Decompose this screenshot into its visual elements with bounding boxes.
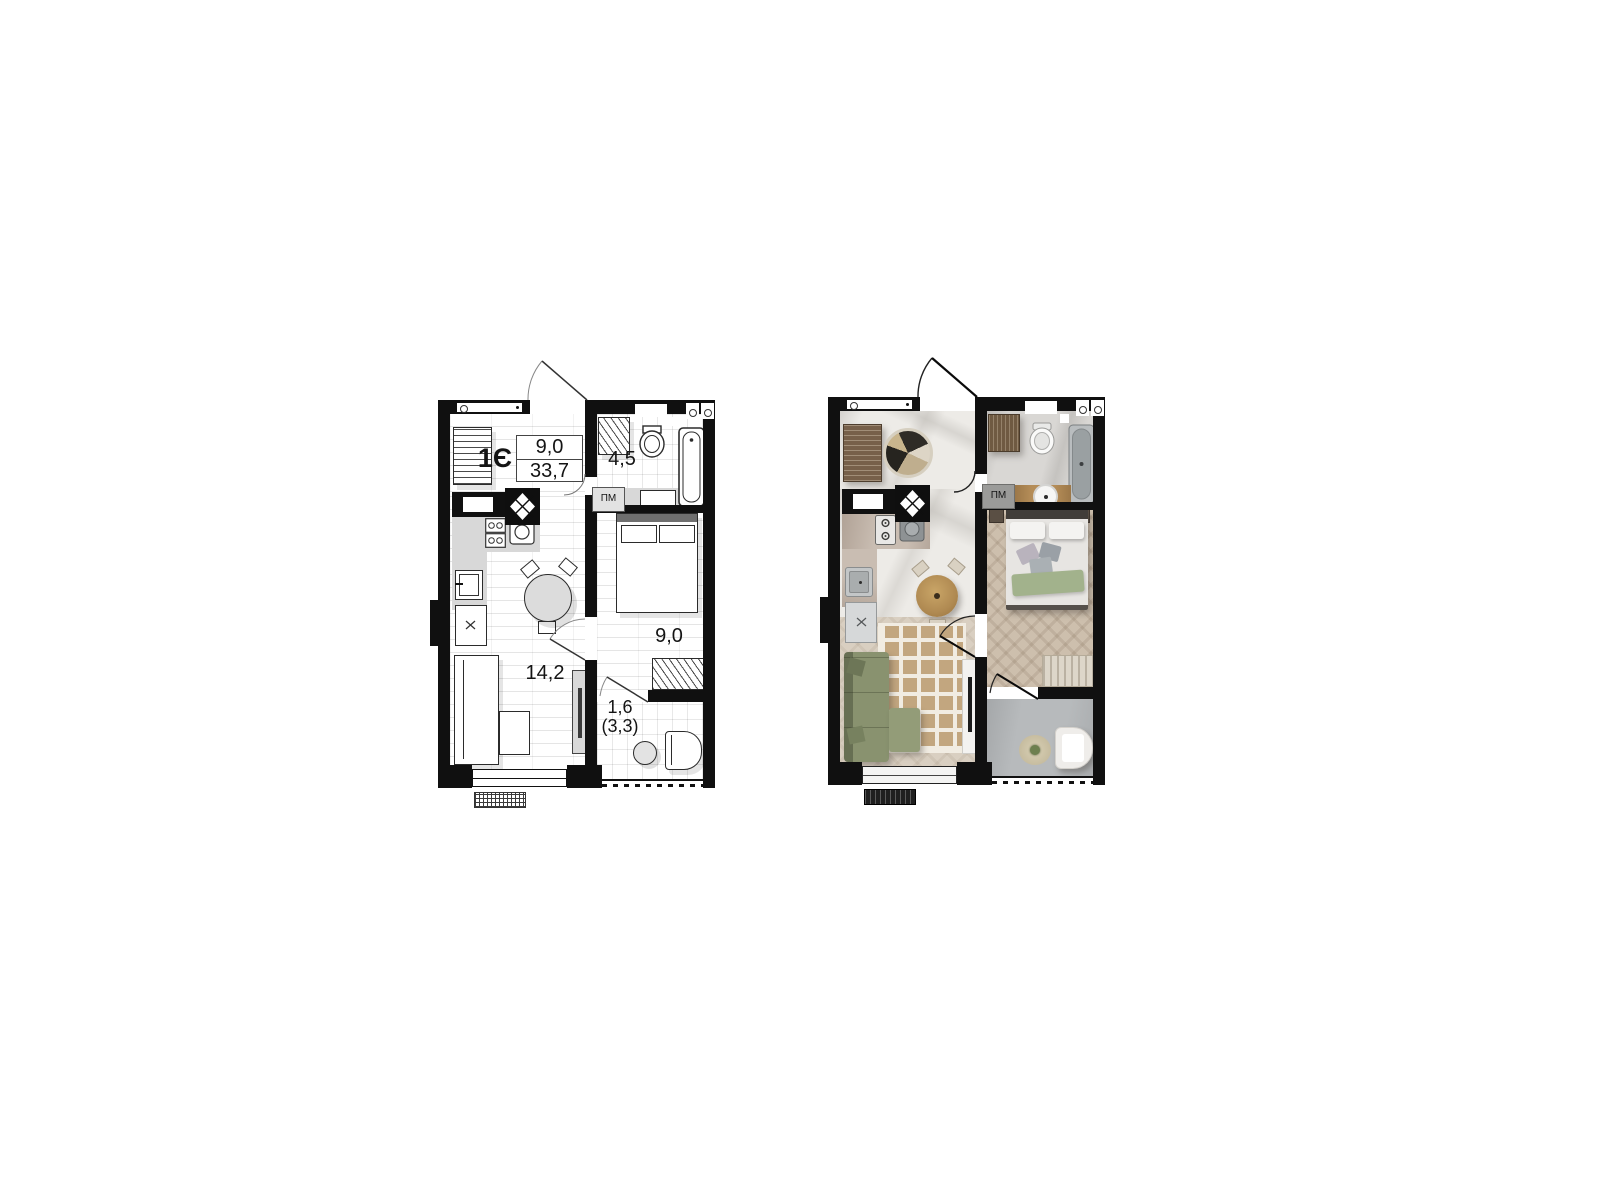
room-area-value: 9,0 xyxy=(517,437,582,458)
wall xyxy=(438,765,472,788)
table-center xyxy=(934,593,940,599)
bathtub-icon xyxy=(678,427,705,507)
bed xyxy=(1006,510,1088,610)
balcony-door-arc xyxy=(600,652,648,702)
fridge xyxy=(455,605,487,646)
living-window xyxy=(472,769,567,787)
hook-icon xyxy=(460,405,468,413)
armchair xyxy=(1055,727,1093,769)
wall xyxy=(703,400,715,788)
bathroom-shelf xyxy=(988,414,1020,452)
vent-circle-icon xyxy=(704,409,712,417)
wardrobe xyxy=(843,424,882,482)
vent-box xyxy=(686,403,699,419)
wall-bedroom-balcony xyxy=(1038,687,1105,699)
corridor-door-arc xyxy=(548,617,585,660)
tv xyxy=(578,688,582,738)
bed xyxy=(616,513,698,613)
headboard xyxy=(1006,510,1088,519)
floor-plan-page: 1Є 9,0 33,7 ПМ 4,5 xyxy=(0,0,1600,1200)
wall-interior xyxy=(975,657,987,785)
armchair-seat xyxy=(1062,734,1084,762)
wall xyxy=(828,762,862,785)
wall-pilaster xyxy=(430,600,438,646)
toilet-icon xyxy=(1028,423,1056,455)
green-throw xyxy=(1011,570,1084,597)
wall-pilaster xyxy=(820,597,828,643)
wall-interior xyxy=(975,411,987,474)
sofa xyxy=(454,655,499,765)
dot-icon xyxy=(516,406,519,409)
bath-niche-small xyxy=(1060,414,1069,423)
round-rug xyxy=(883,428,933,478)
pillow xyxy=(1010,522,1045,539)
radiator xyxy=(864,789,916,805)
schematic-floor-plan: 1Є 9,0 33,7 ПМ 4,5 xyxy=(438,400,715,788)
kitchen-sink-main xyxy=(455,570,483,600)
sofa-pillow xyxy=(847,726,866,745)
bed-footboard xyxy=(1006,605,1088,610)
hook-icon xyxy=(850,402,858,410)
entry-door-arc xyxy=(916,353,978,397)
tv xyxy=(968,677,972,732)
unit-type-label: 1Є xyxy=(468,444,522,472)
drain-dot xyxy=(1044,495,1048,499)
wall-interior xyxy=(975,492,987,614)
dining-table xyxy=(916,575,958,617)
washing-machine: ПМ xyxy=(982,484,1015,509)
kitchen-sink-main xyxy=(845,567,873,597)
faucet xyxy=(455,583,463,585)
plant xyxy=(1030,745,1040,755)
bathtub-icon xyxy=(1068,424,1095,504)
stove-icon xyxy=(875,515,896,545)
sofa-chaise xyxy=(889,708,920,752)
vent-box xyxy=(701,403,714,419)
dot-icon xyxy=(906,403,909,406)
side-table xyxy=(633,741,657,765)
bath-niche xyxy=(635,404,667,417)
living-window xyxy=(862,766,957,784)
dining-table xyxy=(524,574,572,622)
corridor-door-arc xyxy=(938,614,975,657)
vent-shaft-icon xyxy=(895,485,930,522)
bathroom-door-arc xyxy=(564,474,585,495)
furnished-floor-plan: ПМ xyxy=(828,397,1105,785)
washing-machine-label: ПМ xyxy=(983,491,1014,502)
balcony-area-full-label: (3,3) xyxy=(589,717,651,736)
radiator xyxy=(474,792,526,808)
fridge-cross-icon xyxy=(846,603,876,642)
kitchen-niche xyxy=(463,497,493,512)
pillow xyxy=(1049,522,1084,539)
armchair xyxy=(665,731,702,770)
living-area-label: 14,2 xyxy=(513,663,577,684)
vent-box xyxy=(1076,400,1089,416)
vent-circle-icon xyxy=(1094,406,1102,414)
washing-machine: ПМ xyxy=(592,487,625,512)
bath-niche xyxy=(1025,401,1057,414)
sofa-back-line xyxy=(463,660,464,759)
balcony-glazing xyxy=(602,779,703,789)
bath-niche-small xyxy=(670,417,679,426)
sofa-chaise xyxy=(499,711,530,755)
balcony-glazing xyxy=(992,776,1093,786)
hall-shelf xyxy=(847,400,912,409)
wall xyxy=(438,400,450,788)
balcony-area-label: 1,6 xyxy=(594,698,646,717)
stove-icon xyxy=(485,518,506,548)
vent-shaft-icon xyxy=(505,488,540,525)
vent-box xyxy=(1091,400,1104,416)
window-frame-line xyxy=(863,775,956,776)
bedroom-area-label: 9,0 xyxy=(642,626,696,647)
balcony-door-arc xyxy=(990,649,1038,699)
armchair-back-line xyxy=(671,735,672,765)
wall xyxy=(828,397,840,785)
bathroom-door-arc xyxy=(954,471,975,492)
entry-door-arc xyxy=(526,356,588,400)
sink-basin xyxy=(459,574,479,596)
pillow xyxy=(659,525,695,543)
hall-shelf xyxy=(457,403,522,412)
wall-interior xyxy=(585,495,597,617)
wall xyxy=(1093,397,1105,785)
fridge xyxy=(845,602,877,643)
jute-rug xyxy=(1019,735,1051,765)
wall-bedroom-balcony xyxy=(648,690,715,702)
window-frame-line xyxy=(473,778,566,779)
pillow xyxy=(621,525,657,543)
drain-dot xyxy=(859,581,862,584)
washing-machine-label: ПМ xyxy=(593,494,624,505)
vent-circle-icon xyxy=(1079,406,1087,414)
bathroom-area-label: 4,5 xyxy=(596,449,648,470)
kitchen-niche xyxy=(853,494,883,509)
headboard xyxy=(617,514,697,522)
vent-circle-icon xyxy=(689,409,697,417)
fridge-cross-icon xyxy=(456,606,485,644)
